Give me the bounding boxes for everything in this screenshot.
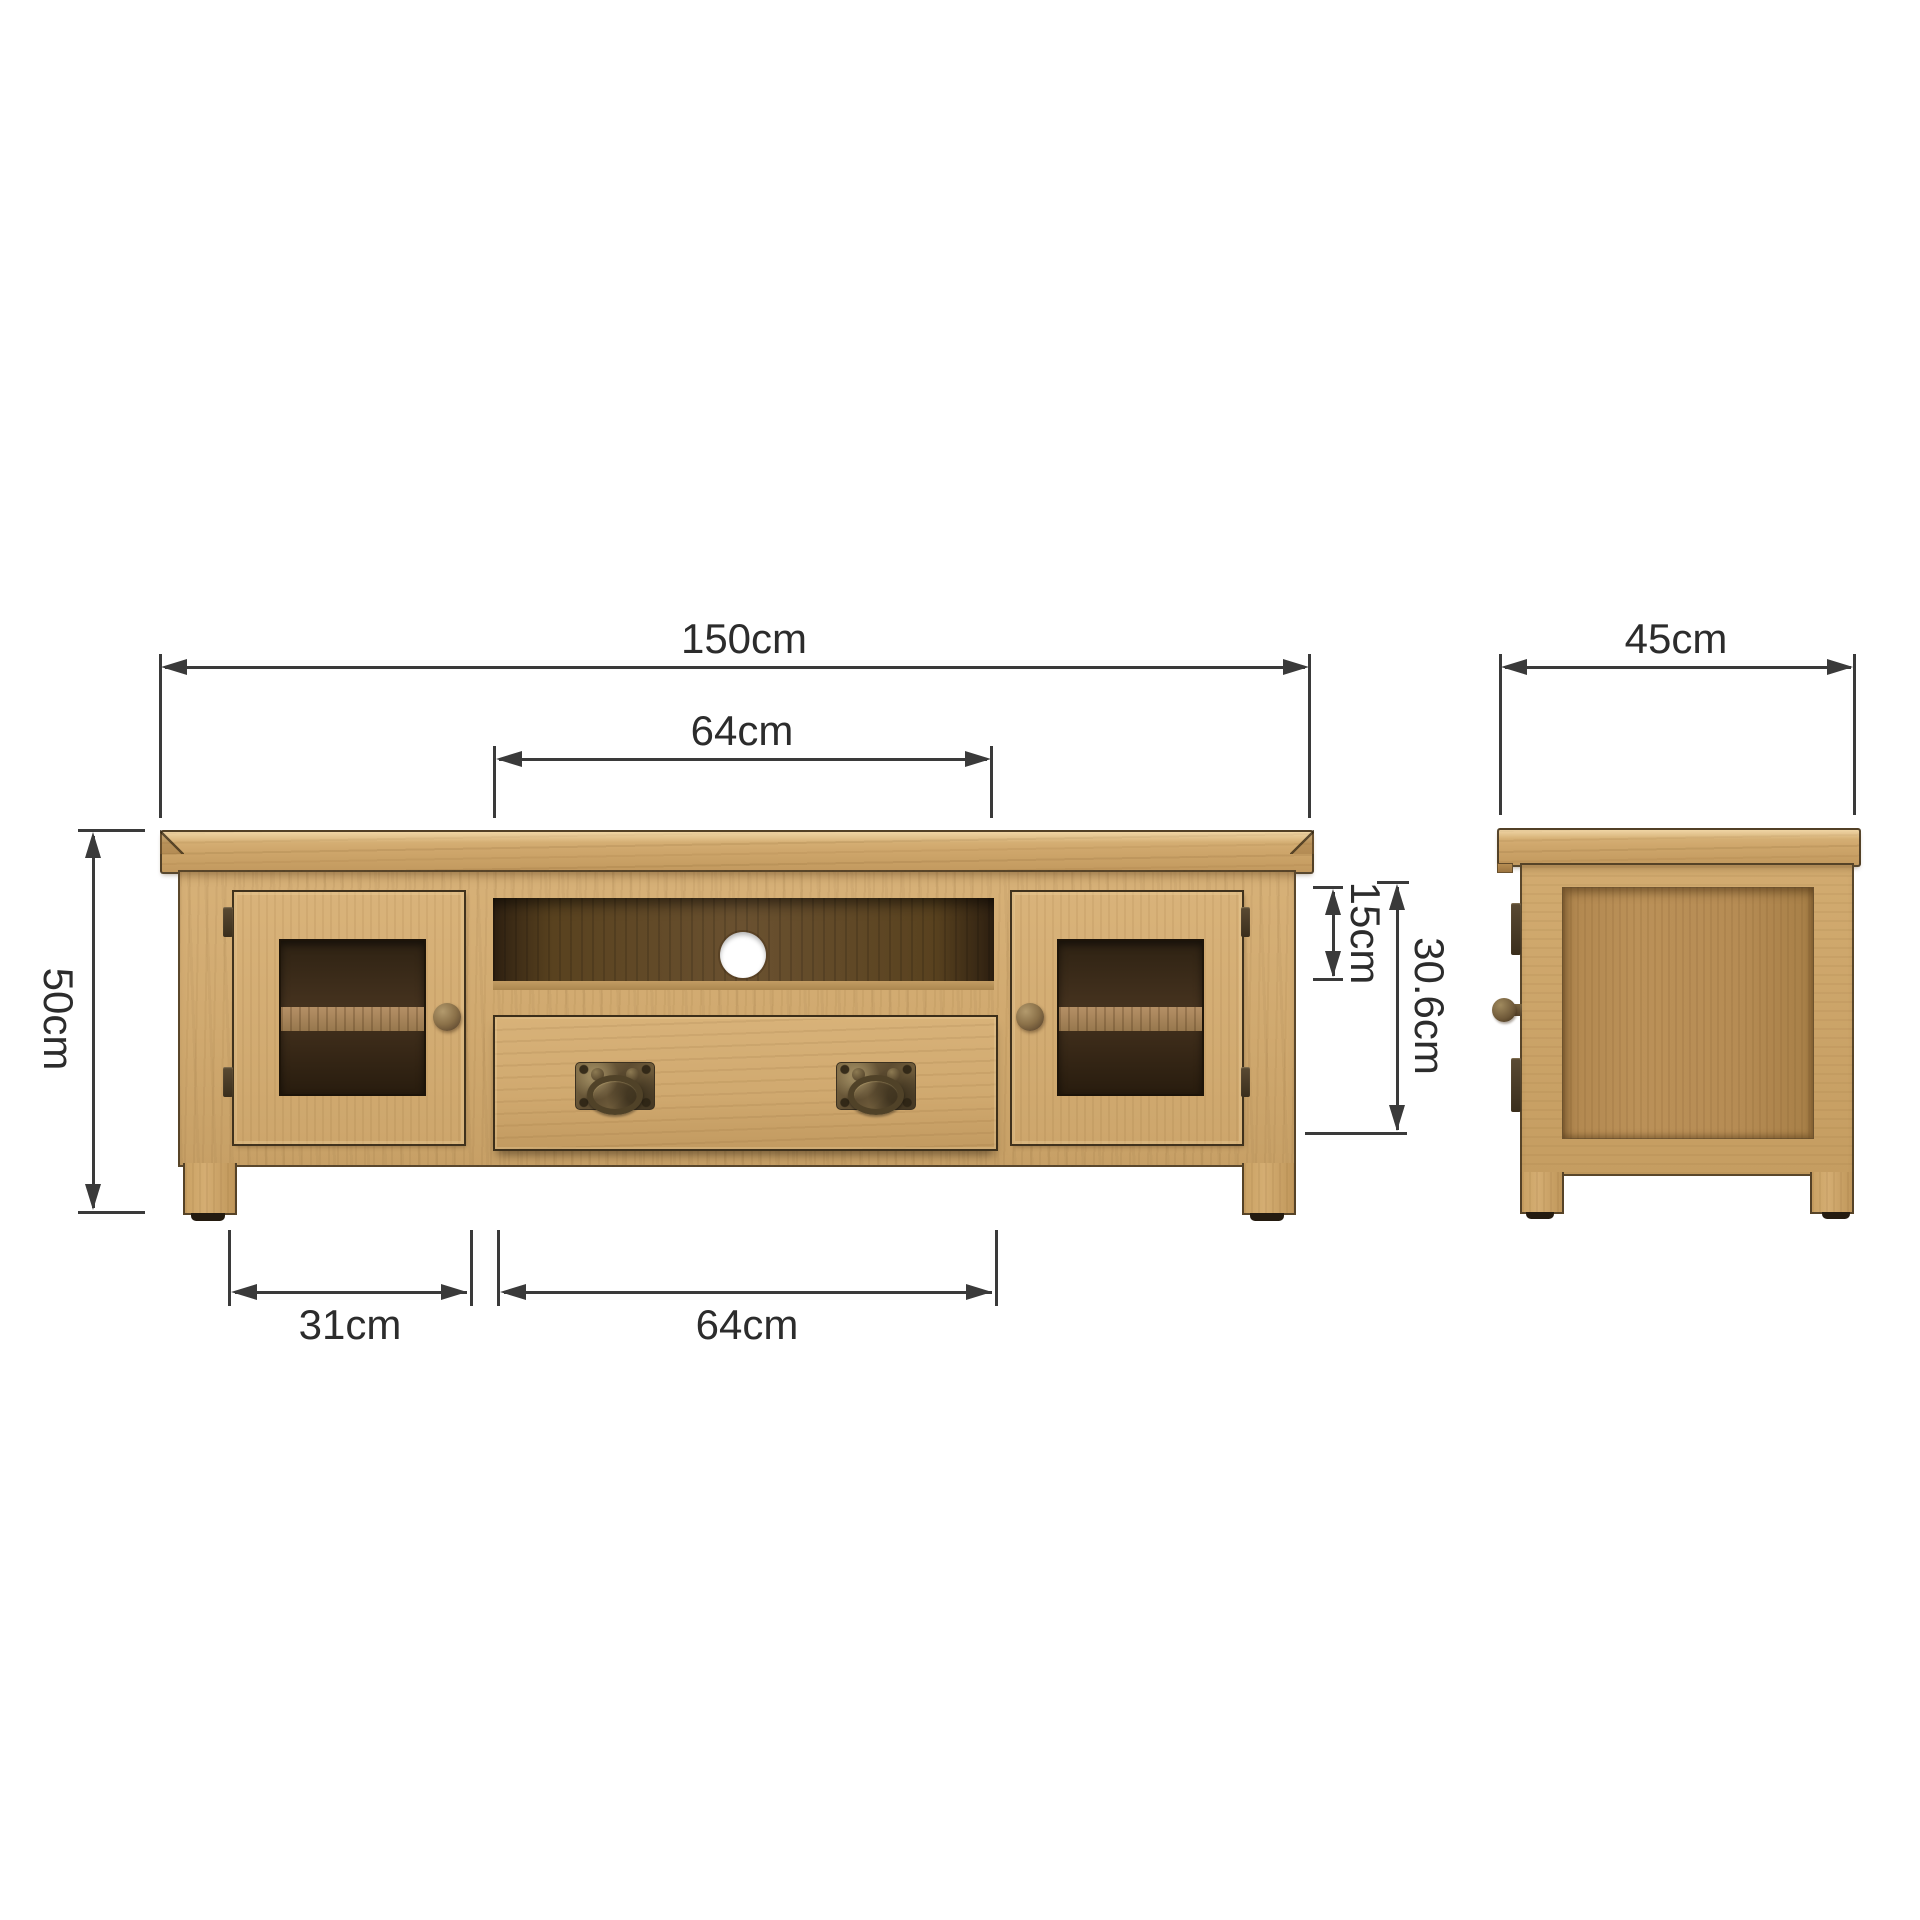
- arrowhead-left: [500, 1284, 526, 1300]
- dimension-drawer-width: 64cm: [0, 0, 1920, 1920]
- dimension-label-drawer-width: 64cm: [696, 1304, 799, 1346]
- diagram-canvas: 150cm 64cm 45cm 50cm 15cm: [0, 0, 1920, 1920]
- dimension-line: [504, 1291, 992, 1294]
- extension-line: [995, 1230, 998, 1306]
- arrowhead-right: [966, 1284, 992, 1300]
